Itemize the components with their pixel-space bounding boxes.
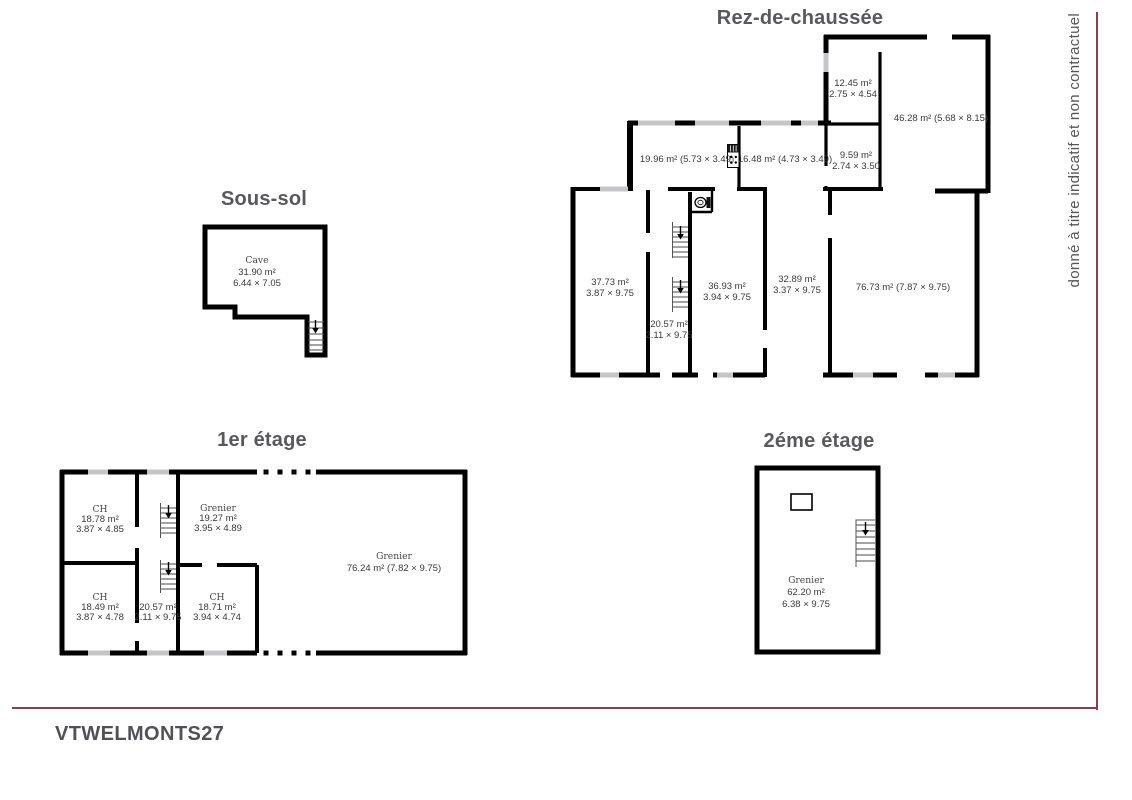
room-area: 62.20 m² xyxy=(787,587,825,598)
room-dims: 3.37 × 9.75 xyxy=(773,285,821,296)
room-label: 76.24 m² (7.82 × 9.75) xyxy=(347,563,441,574)
wall-segment xyxy=(757,468,878,652)
stair-arrow-head xyxy=(862,530,869,536)
room-dims: 3.95 × 4.89 xyxy=(194,523,242,534)
disclaimer-text: donné à titre indicatif et non contractu… xyxy=(1066,13,1083,287)
sous-sol-plan: Cave 31.90 m² 6.44 × 7.05 xyxy=(205,227,325,355)
stove-burner xyxy=(735,156,737,158)
stair-arrow-head xyxy=(312,328,319,334)
toilet-tank xyxy=(707,197,711,208)
floorplans-canvas: Cave 31.90 m² 6.44 × 7.05 xyxy=(0,0,1132,800)
room-area: 20.57 m² xyxy=(650,319,688,330)
room-dims: 3.87 × 9.75 xyxy=(586,288,634,299)
toilet-bowl xyxy=(695,198,706,208)
premier-etage-plan: CH 18.78 m² 3.87 × 4.85 Grenier 19.27 m²… xyxy=(60,470,467,656)
toilet-icon xyxy=(695,197,711,208)
room-area: 31.90 m² xyxy=(238,267,276,278)
room-dims: 2.74 × 3.50 xyxy=(832,161,880,172)
stair-arrow-head xyxy=(677,288,684,294)
room-dims: 3.87 × 4.85 xyxy=(76,524,124,535)
room-dims: 6.44 × 7.05 xyxy=(233,278,281,289)
chimney-icon xyxy=(791,494,812,510)
rez-de-chaussee-plan: 12.45 m² 2.75 × 4.54 46.28 m² (5.68 × 8.… xyxy=(571,35,990,377)
stairs-icon xyxy=(856,520,875,567)
room-label: 16.48 m² (4.73 × 3.49) xyxy=(738,154,832,165)
stairs-icon xyxy=(673,222,689,258)
room-dims: 2.11 × 9.75 xyxy=(134,612,181,623)
room-area: 9.59 m² xyxy=(840,150,872,161)
room-label: 76.73 m² (7.87 × 9.75) xyxy=(856,282,950,293)
room-dims: 2.11 × 9.75 xyxy=(645,330,692,341)
deuxieme-etage-plan: Grenier 62.20 m² 6.38 × 9.75 xyxy=(757,468,878,652)
stairs-icon xyxy=(161,560,177,593)
room-name: Grenier xyxy=(376,551,412,562)
room-label: 46.28 m² (5.68 × 8.15) xyxy=(894,113,988,124)
room-dims: 2.75 × 4.54 xyxy=(829,89,877,100)
accent-line-vertical xyxy=(1096,12,1098,710)
stairs-icon xyxy=(673,277,689,312)
room-dims: 3.87 × 4.78 xyxy=(76,612,124,623)
stairs-icon xyxy=(308,320,324,350)
room-area: 32.89 m² xyxy=(778,274,816,285)
room-name: Cave xyxy=(245,255,268,266)
reference-code: VTWELMONTS27 xyxy=(55,723,224,746)
stove-burner xyxy=(735,161,737,163)
accent-line-horizontal xyxy=(12,707,1098,709)
room-label: 19.96 m² (5.73 × 3.49) xyxy=(640,154,734,165)
dotted-wall-opening xyxy=(264,470,311,656)
room-area: 36.93 m² xyxy=(708,281,746,292)
wall-segment xyxy=(205,227,325,355)
room-name: Grenier xyxy=(788,575,824,586)
floorplan-page: Rez-de-chaussée Sous-sol 1er étage 2éme … xyxy=(0,0,1132,800)
room-dims: 3.94 × 9.75 xyxy=(703,292,751,303)
stair-arrow-head xyxy=(165,570,172,576)
stairs-icon xyxy=(161,503,177,538)
room-area: 37.73 m² xyxy=(591,277,629,288)
room-dims: 3.94 × 4.74 xyxy=(193,612,241,623)
room-area: 12.45 m² xyxy=(834,78,872,89)
room-dims: 6.38 × 9.75 xyxy=(782,599,830,610)
